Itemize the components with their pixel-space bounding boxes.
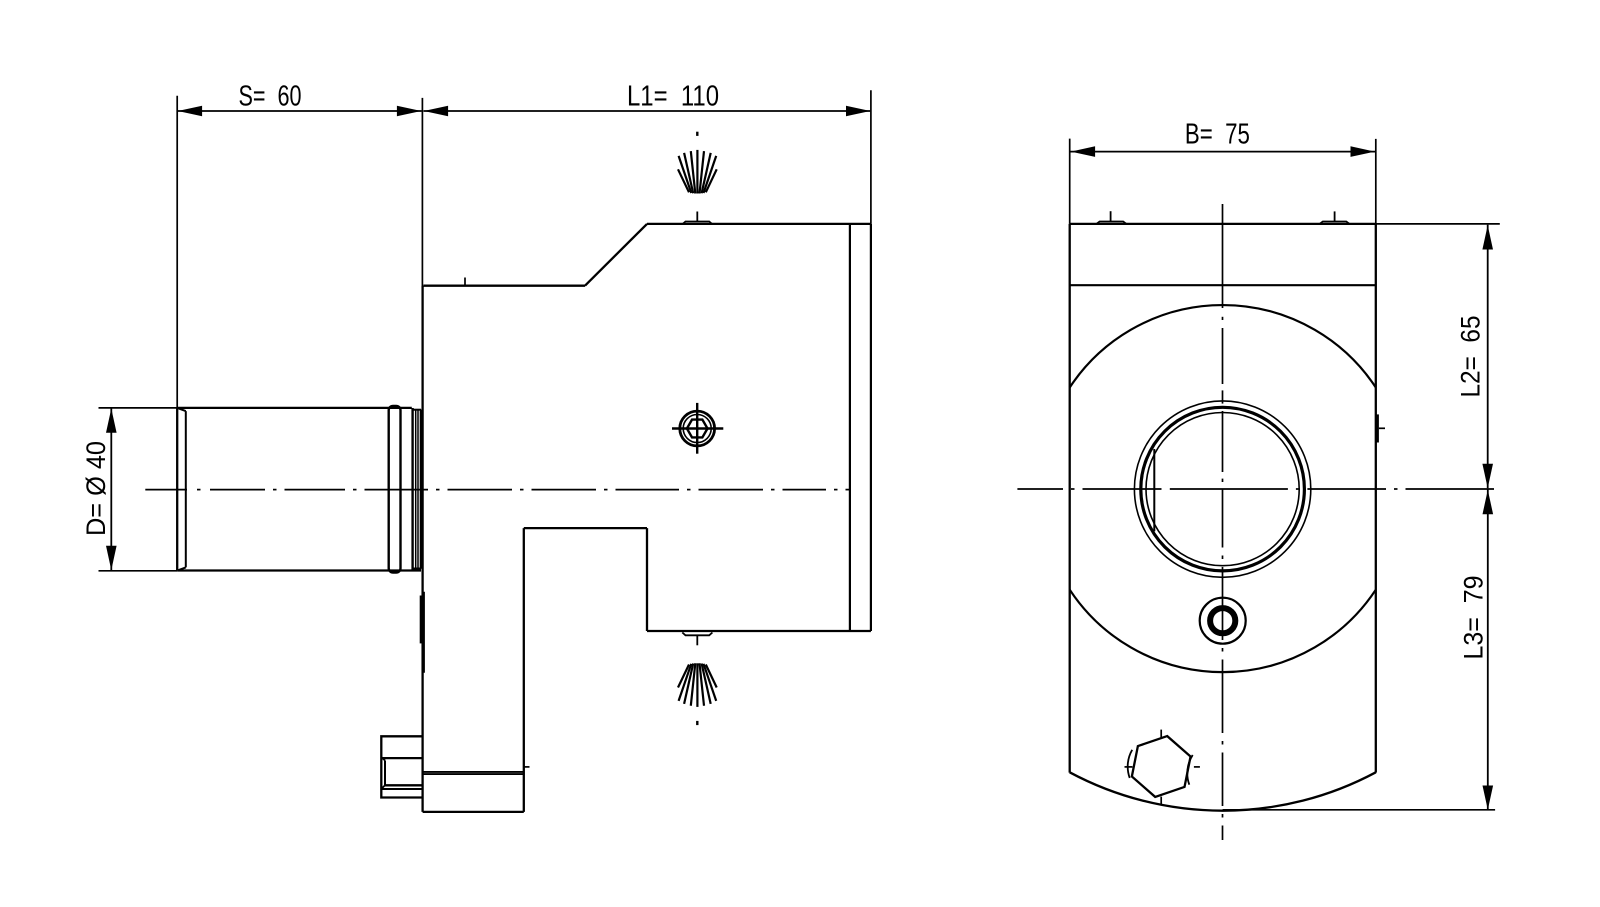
svg-text:S= 60: S= 60 [239, 80, 302, 112]
svg-text:D= Ø 40: D= Ø 40 [81, 441, 111, 536]
svg-text:L2= 65: L2= 65 [1455, 316, 1485, 398]
svg-text:L3= 79: L3= 79 [1459, 576, 1489, 660]
svg-text:B= 75: B= 75 [1185, 119, 1250, 151]
svg-text:L1= 110: L1= 110 [627, 80, 719, 112]
